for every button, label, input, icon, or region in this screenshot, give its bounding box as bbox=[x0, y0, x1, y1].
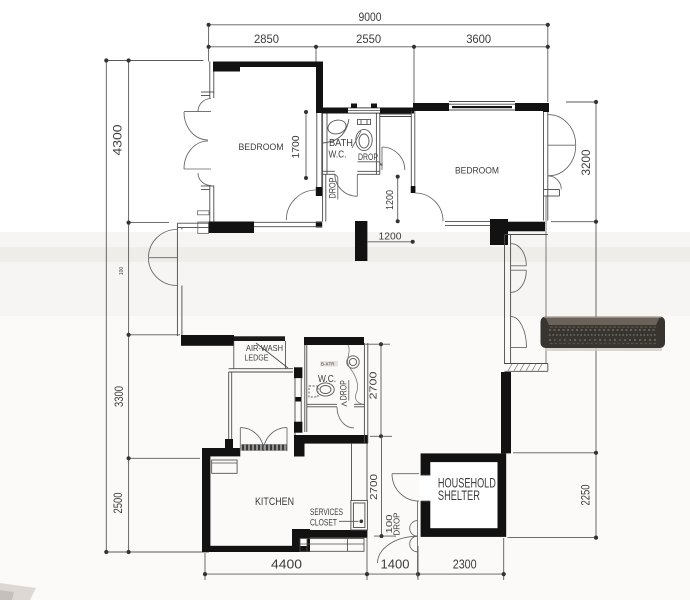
svg-text:2700: 2700 bbox=[368, 474, 380, 500]
svg-text:LEDGE: LEDGE bbox=[245, 354, 269, 363]
svg-text:1400: 1400 bbox=[381, 558, 410, 572]
svg-text:2300: 2300 bbox=[453, 558, 477, 572]
svg-text:B-XTR: B-XTR bbox=[321, 362, 335, 367]
svg-text:2250: 2250 bbox=[579, 484, 593, 505]
svg-text:W.C.: W.C. bbox=[318, 373, 336, 385]
svg-text:4300: 4300 bbox=[111, 124, 125, 155]
svg-text:AIR-WASH: AIR-WASH bbox=[246, 344, 283, 353]
svg-text:4400: 4400 bbox=[271, 558, 302, 572]
svg-text:3200: 3200 bbox=[579, 149, 593, 175]
svg-text:9000: 9000 bbox=[359, 10, 382, 24]
svg-text:2500: 2500 bbox=[111, 492, 125, 513]
svg-text:DROP: DROP bbox=[328, 178, 338, 199]
svg-text:SHELTER: SHELTER bbox=[438, 487, 480, 503]
svg-text:3300: 3300 bbox=[112, 386, 126, 407]
svg-text:BEDROOM: BEDROOM bbox=[239, 142, 284, 153]
svg-text:1200: 1200 bbox=[385, 190, 396, 210]
svg-text:DROP: DROP bbox=[392, 512, 402, 535]
svg-text:3600: 3600 bbox=[466, 32, 491, 46]
svg-text:1200: 1200 bbox=[379, 231, 402, 243]
svg-text:1700: 1700 bbox=[290, 135, 302, 158]
svg-text:4Q 400xGfx2e0u 034 Qm: 4Q 400xGfx2e0u 034 Qm bbox=[553, 339, 627, 346]
svg-text:SERVICES: SERVICES bbox=[310, 507, 343, 518]
svg-text:2850: 2850 bbox=[254, 32, 279, 46]
svg-text:KITCHEN: KITCHEN bbox=[255, 496, 294, 508]
svg-text:W.C.: W.C. bbox=[329, 150, 347, 161]
svg-text:100: 100 bbox=[119, 267, 125, 276]
svg-text:BATH: BATH bbox=[329, 138, 353, 149]
svg-text:2700: 2700 bbox=[368, 371, 380, 399]
svg-text:2550: 2550 bbox=[356, 32, 381, 46]
svg-text:CLOSET: CLOSET bbox=[310, 517, 337, 528]
svg-text:DROP: DROP bbox=[358, 152, 378, 162]
svg-text:DROP: DROP bbox=[339, 380, 349, 400]
svg-text:BEDROOM: BEDROOM bbox=[455, 166, 499, 177]
